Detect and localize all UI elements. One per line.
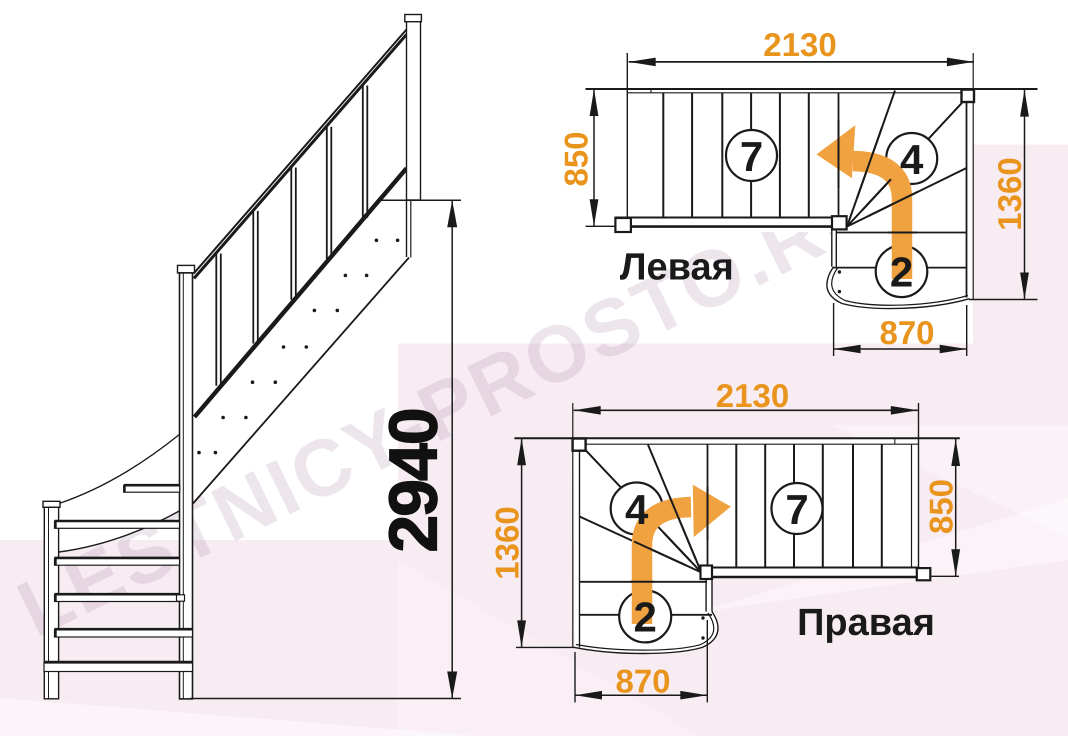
svg-text:4: 4 bbox=[625, 486, 649, 533]
svg-text:2: 2 bbox=[634, 594, 657, 641]
svg-text:7: 7 bbox=[740, 133, 763, 180]
svg-text:7: 7 bbox=[785, 486, 808, 533]
svg-text:1360: 1360 bbox=[991, 157, 1028, 230]
svg-text:2130: 2130 bbox=[716, 377, 789, 414]
svg-text:1360: 1360 bbox=[489, 506, 526, 579]
svg-text:850: 850 bbox=[558, 131, 595, 186]
svg-text:870: 870 bbox=[615, 663, 670, 700]
svg-text:2940: 2940 bbox=[376, 409, 452, 552]
svg-text:Правая: Правая bbox=[797, 602, 935, 644]
svg-text:850: 850 bbox=[923, 479, 960, 534]
svg-text:4: 4 bbox=[900, 136, 924, 183]
svg-text:2130: 2130 bbox=[763, 26, 836, 63]
svg-text:2: 2 bbox=[890, 249, 913, 296]
svg-text:Левая: Левая bbox=[620, 247, 734, 289]
svg-text:870: 870 bbox=[879, 314, 934, 351]
